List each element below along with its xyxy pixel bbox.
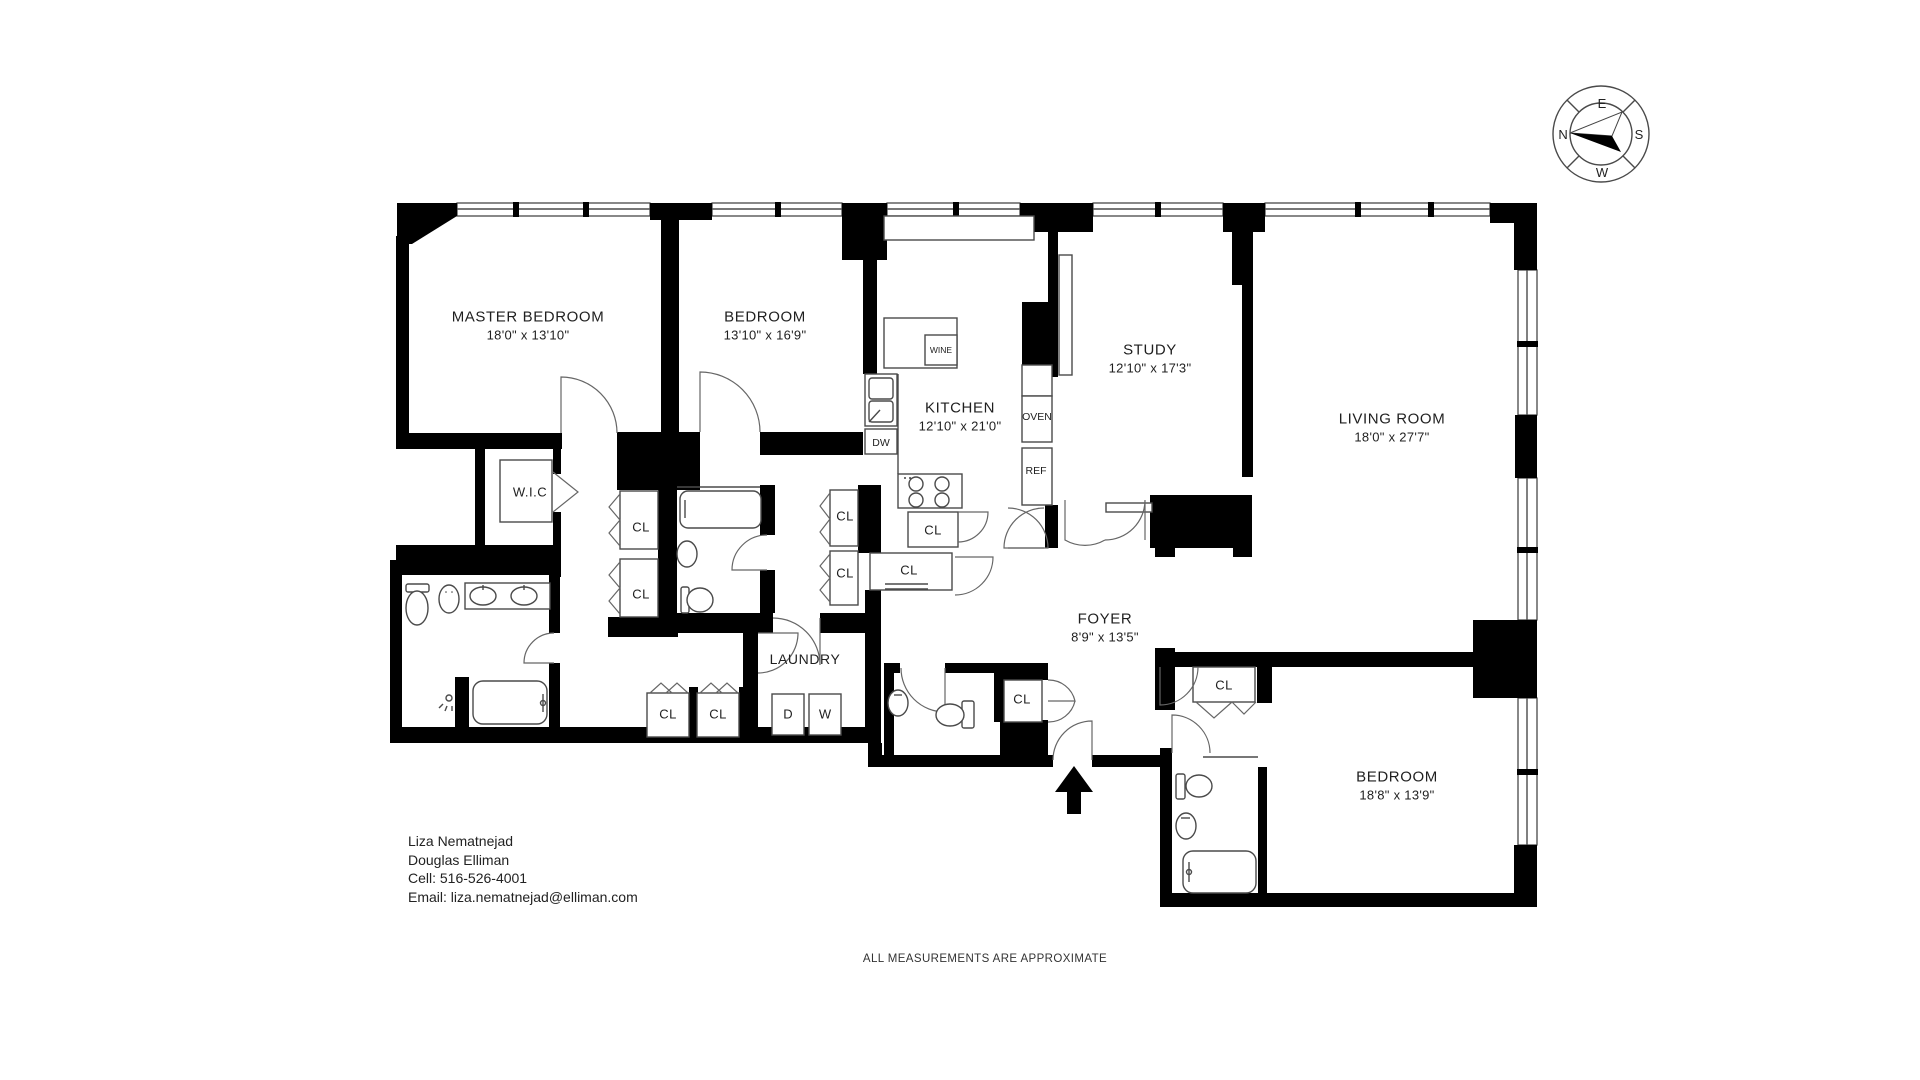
closet-label: CL [900,564,918,577]
room-dims-master-bedroom: 18'0" x 13'10" [487,329,570,342]
closet-label: CL [1013,693,1031,706]
closet-label: CL [836,567,854,580]
room-dims-bedroom-2: 13'10" x 16'9" [724,329,807,342]
room-dims-study: 12'10" x 17'3" [1109,362,1192,375]
appliance-label-washer: W [819,708,831,721]
agent-company: Douglas Elliman [408,851,638,870]
appliance-label-dryer: D [783,708,792,721]
shower-head-icon [439,695,452,711]
measurements-disclaimer: ALL MEASUREMENTS ARE APPROXIMATE [863,953,1107,965]
appliance-label-refrigerator: REF [1026,466,1047,477]
closet-label: CL [924,524,942,537]
room-label-bedroom-2: BEDROOM [724,310,806,325]
closet-label: CL [632,588,650,601]
agent-email: Email: liza.nematnejad@elliman.com [408,888,638,907]
room-label-wic: W.I.C [513,486,547,499]
room-label-bedroom-3: BEDROOM [1356,770,1438,785]
entry-arrow [1055,766,1093,814]
room-dims-living-room: 18'0" x 27'7" [1354,431,1429,444]
window-bands [457,202,1538,845]
agent-name: Liza Nematnejad [408,832,638,851]
compass-south-label: S [1635,127,1644,142]
room-dims-kitchen: 12'10" x 21'0" [919,420,1002,433]
compass-rose: E N S W [1553,86,1649,182]
closet-label: CL [709,708,727,721]
closet-label: CL [1215,679,1233,692]
closet-label: CL [659,708,677,721]
floorplan-drawing: E N S W [0,0,1920,1080]
room-label-foyer: FOYER [1078,612,1133,627]
agent-contact-block: Liza Nematnejad Douglas Elliman Cell: 51… [408,832,638,906]
compass-west-label: W [1596,165,1609,180]
appliance-label-oven: OVEN [1022,412,1052,423]
room-label-study: STUDY [1123,343,1177,358]
appliance-label-wine: WINE [930,346,952,355]
closet-label: CL [632,521,650,534]
room-label-master-bedroom: MASTER BEDROOM [452,310,605,325]
room-label-kitchen: KITCHEN [925,401,995,416]
compass-east-label: E [1598,96,1607,111]
room-dims-bedroom-3: 18'8" x 13'9" [1359,789,1434,802]
agent-cell: Cell: 516-526-4001 [408,869,638,888]
floorplan-page: E N S W MASTER BEDROOM 18'0" x 13'10" BE… [0,0,1920,1080]
appliance-label-dishwasher: DW [872,438,890,449]
room-dims-foyer: 8'9" x 13'5" [1071,631,1139,644]
compass-north-label: N [1558,127,1567,142]
room-label-laundry: LAUNDRY [770,652,841,666]
closet-label: CL [836,510,854,523]
room-label-living-room: LIVING ROOM [1339,412,1446,427]
